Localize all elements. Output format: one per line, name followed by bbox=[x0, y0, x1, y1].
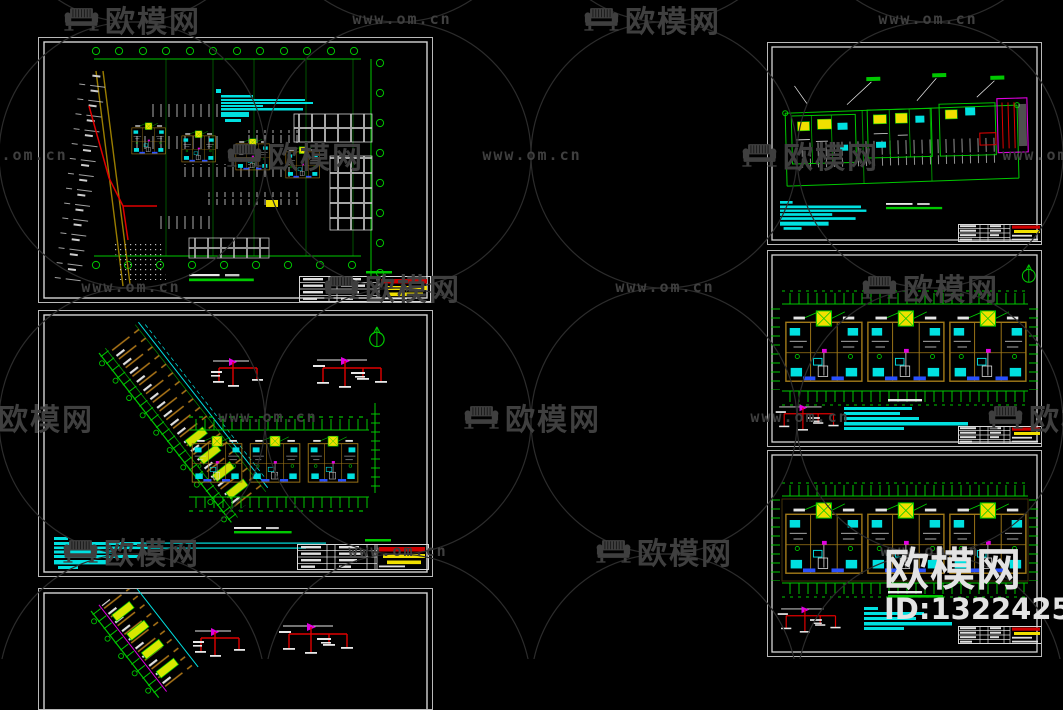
scale-bar bbox=[234, 527, 292, 533]
brand-watermark-text: 欧模网 bbox=[637, 529, 733, 573]
sheet-roof-plan bbox=[767, 42, 1042, 245]
north-arrow bbox=[370, 327, 384, 347]
power-riser-diagram bbox=[778, 606, 841, 632]
parking-stalls bbox=[134, 104, 299, 229]
url-watermark: www.om.cn bbox=[482, 146, 581, 164]
brand-watermark-text: 欧模网 bbox=[365, 265, 461, 309]
legend-cyan bbox=[54, 537, 326, 569]
url-watermark-text: www.om.cn bbox=[615, 278, 714, 296]
sheet-floor-plan-wing bbox=[38, 310, 433, 577]
title-block bbox=[297, 544, 429, 570]
url-watermark: www.om.cn bbox=[615, 278, 714, 296]
sofa-icon bbox=[987, 405, 1024, 429]
brand-watermark-text: 欧模网 bbox=[0, 395, 94, 439]
url-watermark-text: www.om.cn bbox=[0, 146, 68, 164]
sheet-parking-floor-plan-drawing bbox=[39, 38, 432, 302]
url-watermark-text: www.om.cn bbox=[750, 408, 849, 426]
url-watermark: www.om.cn bbox=[1002, 146, 1063, 164]
brand-watermark: 欧模网 bbox=[861, 265, 999, 309]
power-riser-diagram bbox=[776, 404, 839, 430]
scale-bar bbox=[888, 399, 922, 401]
url-watermark: www.om.cn bbox=[0, 146, 68, 164]
sofa-icon bbox=[63, 7, 100, 31]
url-watermark-text: www.om.cn bbox=[878, 10, 977, 28]
power-riser-diagram bbox=[279, 623, 353, 654]
horizontal-wing bbox=[189, 403, 380, 511]
grid-bubbles-right bbox=[376, 59, 383, 276]
sofa-icon bbox=[62, 539, 99, 563]
brand-watermark-text: 欧模网 bbox=[505, 395, 601, 439]
url-watermark-text: www.om.cn bbox=[482, 146, 581, 164]
sheet-roof-plan-drawing bbox=[768, 43, 1041, 244]
scale-bar bbox=[886, 203, 942, 209]
diagonal-wing bbox=[94, 320, 274, 527]
sheet-floor-plan-partial bbox=[38, 588, 433, 710]
power-riser-diagram bbox=[313, 357, 387, 388]
brand-watermark-text: 欧模网 bbox=[104, 529, 200, 573]
brand-watermark-text: 欧模网 bbox=[1029, 395, 1063, 439]
brand-watermark-text: 欧模网 bbox=[625, 0, 721, 41]
brand-watermark-text: 欧模网 bbox=[105, 0, 201, 41]
title-block bbox=[958, 626, 1041, 644]
storage-rooms bbox=[189, 114, 372, 258]
url-watermark: www.om.cn bbox=[218, 408, 317, 426]
leader-lines bbox=[794, 77, 995, 106]
brand-watermark: 欧模网 bbox=[595, 529, 733, 573]
url-watermark: www.om.cn bbox=[352, 10, 451, 28]
site-boundary-lines bbox=[96, 71, 130, 286]
red-boundary-line bbox=[89, 106, 157, 240]
diagonal-wing bbox=[86, 589, 198, 702]
roof-cluster-mech bbox=[939, 98, 1028, 156]
roof-cluster bbox=[867, 108, 932, 158]
sheet-unit-floor-plan-a bbox=[767, 250, 1042, 447]
grid-bubbles-bottom bbox=[92, 261, 355, 268]
unit-blocks bbox=[132, 123, 320, 178]
brand-watermark-text: 欧模网 bbox=[268, 133, 364, 177]
sofa-icon bbox=[583, 7, 620, 31]
sheet-parking-floor-plan bbox=[38, 37, 433, 303]
url-watermark: www.om.cn bbox=[878, 10, 977, 28]
brand-watermark: 欧模网 bbox=[583, 0, 721, 41]
brand-watermark: 欧模网 bbox=[63, 0, 201, 41]
cad-notes-cyan bbox=[216, 89, 313, 122]
sheet-unit-floor-plan-a-drawing bbox=[768, 251, 1041, 446]
url-watermark: www.om.cn bbox=[348, 542, 447, 560]
unit-blocks bbox=[786, 311, 1026, 381]
brand-watermark: 欧模网 bbox=[62, 529, 200, 573]
sofa-icon bbox=[861, 275, 898, 299]
url-watermark-text: www.om.cn bbox=[352, 10, 451, 28]
id-watermark-number: ID:1322425 bbox=[884, 595, 1063, 624]
brand-watermark: 欧模网 bbox=[987, 395, 1063, 439]
north-arrow bbox=[1022, 265, 1035, 283]
cad-preview-page: { "watermark": { "brand_text": "欧模网", "u… bbox=[0, 0, 1063, 659]
dimension-rows bbox=[771, 291, 1038, 405]
title-block bbox=[958, 224, 1041, 242]
url-watermark-text: www.om.cn bbox=[218, 408, 317, 426]
sofa-icon bbox=[595, 539, 632, 563]
url-watermark-text: www.om.cn bbox=[81, 278, 180, 296]
legend-cyan bbox=[844, 407, 968, 430]
brand-watermark-text: 欧模网 bbox=[903, 265, 999, 309]
sheet-floor-plan-wing-drawing bbox=[39, 311, 432, 576]
sofa-icon bbox=[463, 405, 500, 429]
roof-cluster bbox=[791, 114, 856, 164]
grid-bubbles-top bbox=[92, 47, 357, 54]
power-riser-diagram bbox=[193, 628, 245, 657]
scale-bar bbox=[189, 274, 254, 281]
sofa-icon bbox=[741, 143, 778, 167]
roof-plan-body bbox=[782, 71, 1029, 186]
sofa-icon bbox=[226, 143, 263, 167]
url-watermark-text: www.om.cn bbox=[1002, 146, 1063, 164]
hatched-area bbox=[114, 244, 166, 280]
brand-watermark: 欧模网 bbox=[741, 133, 879, 177]
title-block bbox=[958, 426, 1041, 444]
brand-watermark: 欧模网 bbox=[226, 133, 364, 177]
brand-watermark-text: 欧模网 bbox=[783, 133, 879, 177]
brand-watermark: 欧模网 bbox=[323, 265, 461, 309]
sofa-icon bbox=[323, 275, 360, 299]
block-label bbox=[266, 200, 278, 207]
legend-cyan bbox=[780, 201, 866, 230]
id-watermark: 欧模网 ID:1322425 bbox=[884, 545, 1063, 624]
brand-watermark: 欧模网 bbox=[0, 395, 94, 439]
url-watermark: www.om.cn bbox=[750, 408, 849, 426]
sheet-floor-plan-partial-drawing bbox=[39, 589, 432, 709]
plan-labels-green bbox=[866, 71, 1004, 83]
url-watermark-text: www.om.cn bbox=[348, 542, 447, 560]
id-watermark-brand: 欧模网 bbox=[884, 545, 1063, 595]
brand-watermark: 欧模网 bbox=[463, 395, 601, 439]
url-watermark: www.om.cn bbox=[81, 278, 180, 296]
title-block bbox=[299, 276, 431, 302]
power-riser-diagram bbox=[211, 358, 263, 387]
